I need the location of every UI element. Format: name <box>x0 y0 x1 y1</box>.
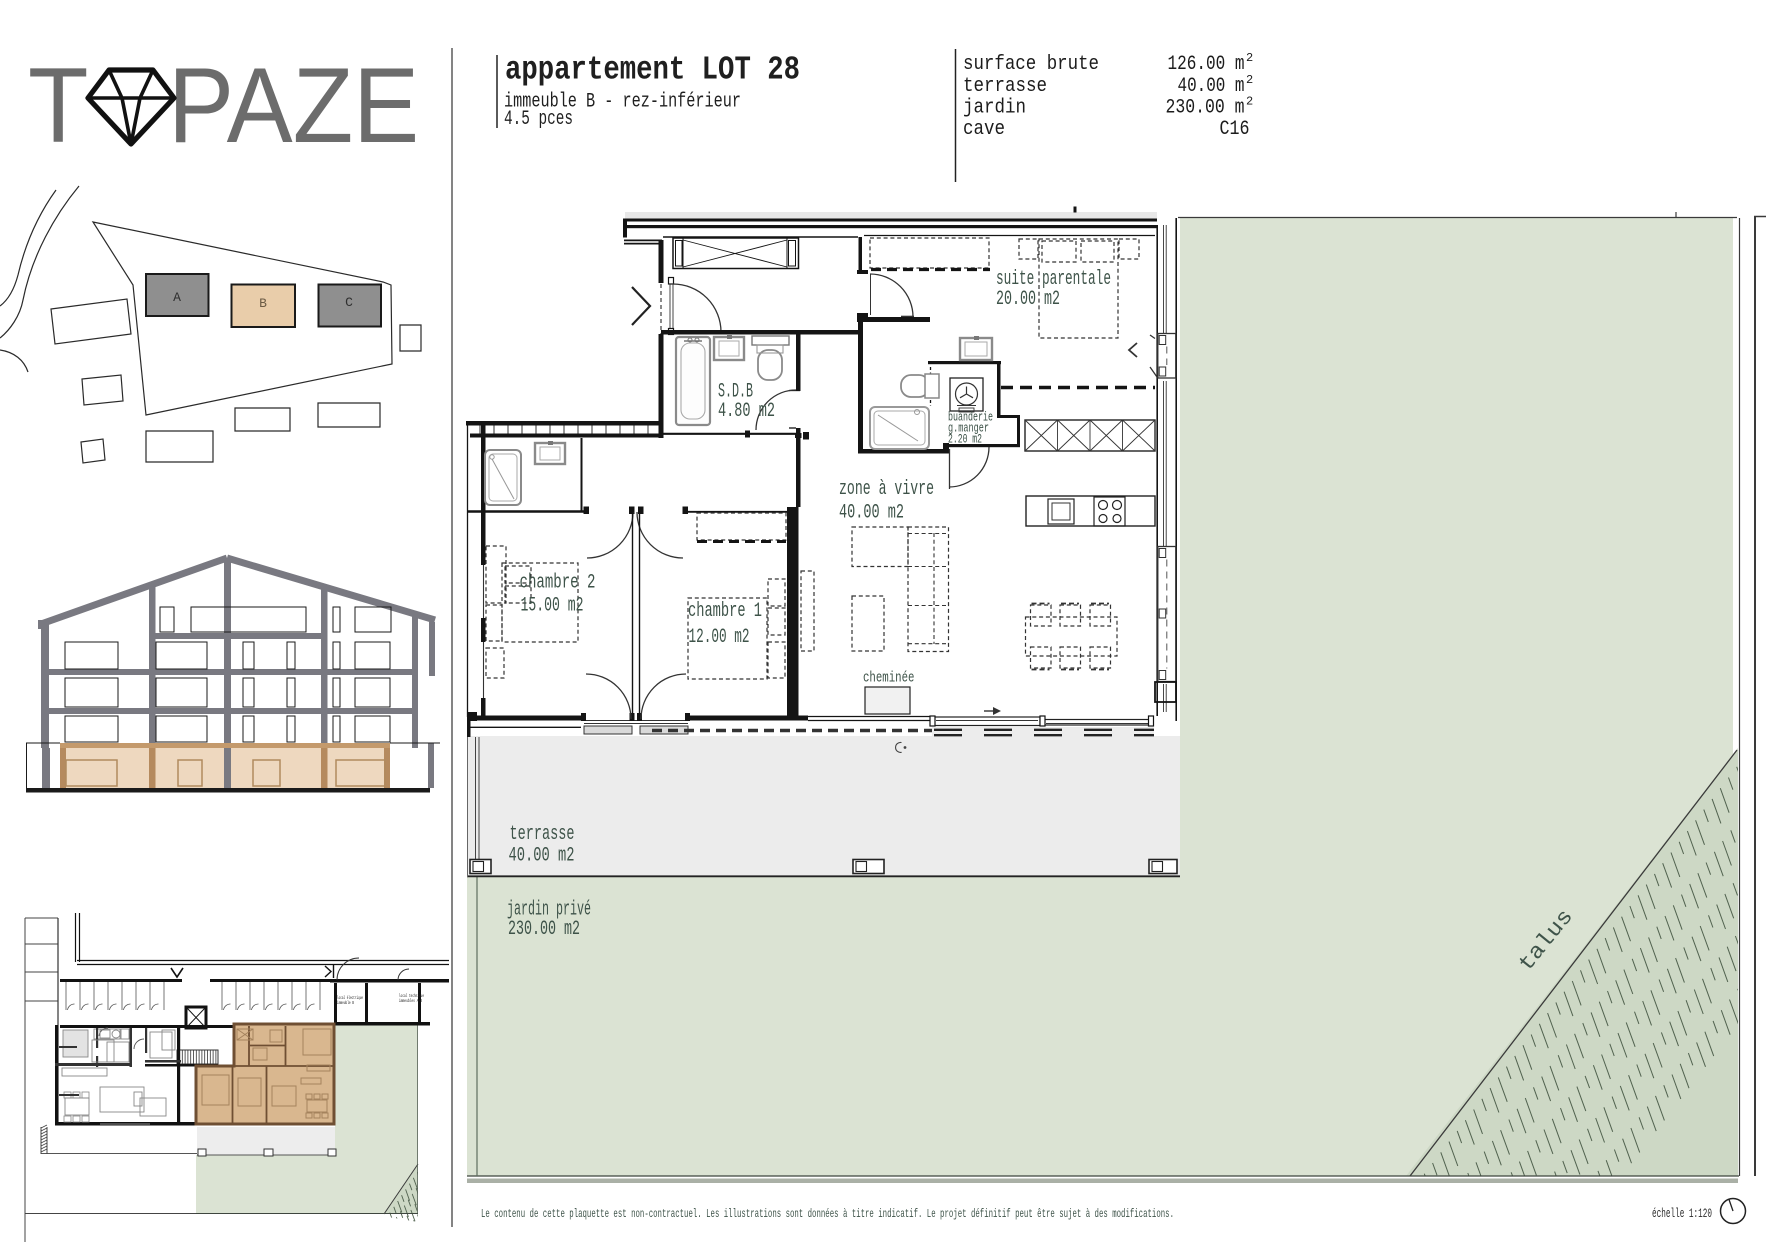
svg-text:126.00 m: 126.00 m <box>1168 53 1245 76</box>
svg-text:cheminée: cheminée <box>863 671 915 687</box>
svg-text:2: 2 <box>1246 51 1253 65</box>
svg-text:jardin: jardin <box>963 97 1026 120</box>
svg-text:cave: cave <box>963 118 1005 141</box>
svg-text:surface brute: surface brute <box>963 53 1099 76</box>
svg-text:B: B <box>259 296 267 311</box>
svg-text:zone à vivre: zone à vivre <box>839 478 934 501</box>
svg-text:2: 2 <box>1246 95 1253 109</box>
svg-text:immeubles A+B: immeubles A+B <box>399 998 422 1004</box>
svg-text:chambre 1: chambre 1 <box>688 600 762 623</box>
svg-text:C: C <box>345 295 353 310</box>
svg-text:230.00 m2: 230.00 m2 <box>508 918 580 941</box>
svg-text:terrasse: terrasse <box>510 823 575 846</box>
svg-text:4.5 pces: 4.5 pces <box>504 108 573 131</box>
svg-text:40.00 m2: 40.00 m2 <box>509 845 575 868</box>
svg-text:appartement LOT 28: appartement LOT 28 <box>505 52 800 89</box>
svg-text:2: 2 <box>1246 73 1253 87</box>
svg-text:230.00 m: 230.00 m <box>1166 97 1245 120</box>
svg-text:20.00 m2: 20.00 m2 <box>996 288 1060 311</box>
svg-text:chambre 2: chambre 2 <box>520 572 596 595</box>
svg-text:40.00 m2: 40.00 m2 <box>839 502 904 525</box>
svg-text:T: T <box>28 45 88 164</box>
svg-text:A: A <box>173 290 181 305</box>
svg-text:C16: C16 <box>1220 118 1250 141</box>
svg-text:Le contenu de cette plaquette: Le contenu de cette plaquette est non-co… <box>481 1207 1174 1221</box>
svg-text:40.00 m: 40.00 m <box>1178 75 1245 98</box>
svg-text:immeuble B: immeuble B <box>337 1000 354 1006</box>
svg-text:PAZE: PAZE <box>168 45 419 164</box>
svg-text:15.00 m2: 15.00 m2 <box>521 595 584 618</box>
svg-text:12.00 m2: 12.00 m2 <box>689 626 750 649</box>
svg-text:échelle 1:120: échelle 1:120 <box>1652 1206 1712 1221</box>
svg-text:2.20 m2: 2.20 m2 <box>948 432 982 447</box>
svg-text:4.80 m2: 4.80 m2 <box>718 400 775 423</box>
svg-text:terrasse: terrasse <box>963 75 1047 98</box>
